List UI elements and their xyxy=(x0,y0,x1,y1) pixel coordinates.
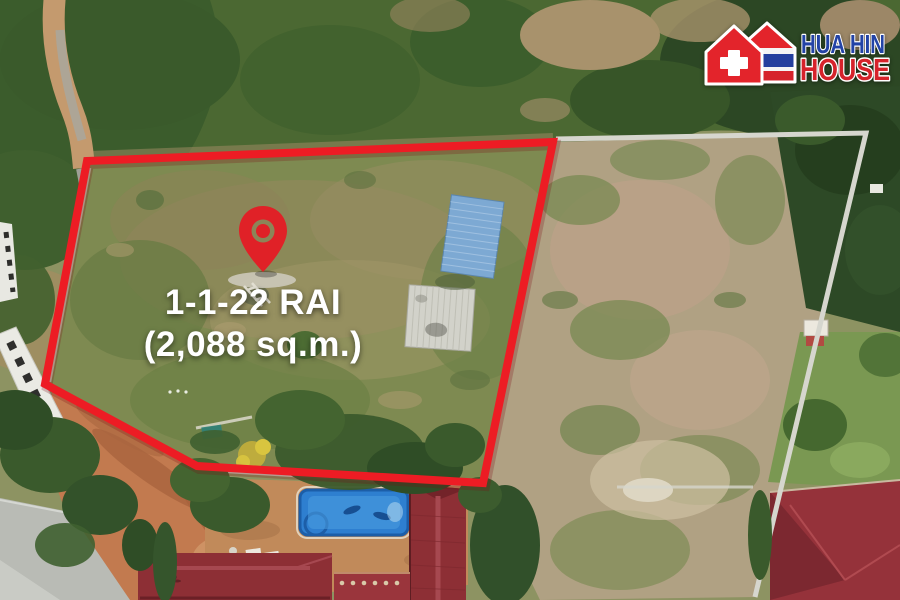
villa-roof-east xyxy=(410,484,466,600)
blue-roof-shed xyxy=(441,195,504,279)
swimming-pool xyxy=(297,487,411,538)
logo-subtitle: HOUSE xyxy=(800,52,890,87)
small-sign xyxy=(870,184,883,193)
area-label-line2: (2,088 sq.m.) xyxy=(144,325,363,364)
wall-hedge xyxy=(748,490,772,580)
villa-roof-center xyxy=(334,572,410,600)
neighbour-house-roof xyxy=(770,480,900,600)
area-label-line1: 1-1-22 RAI xyxy=(165,283,341,322)
aerial-photo: 1-1-22 RAI (2,088 sq.m.) HUA HIN HOUSE xyxy=(0,0,900,600)
white-roof-shed xyxy=(405,285,475,351)
shed-shadow xyxy=(435,274,475,290)
aerial-land-listing-photo: 1-1-22 RAI (2,088 sq.m.) HUA HIN HOUSE xyxy=(0,0,900,600)
